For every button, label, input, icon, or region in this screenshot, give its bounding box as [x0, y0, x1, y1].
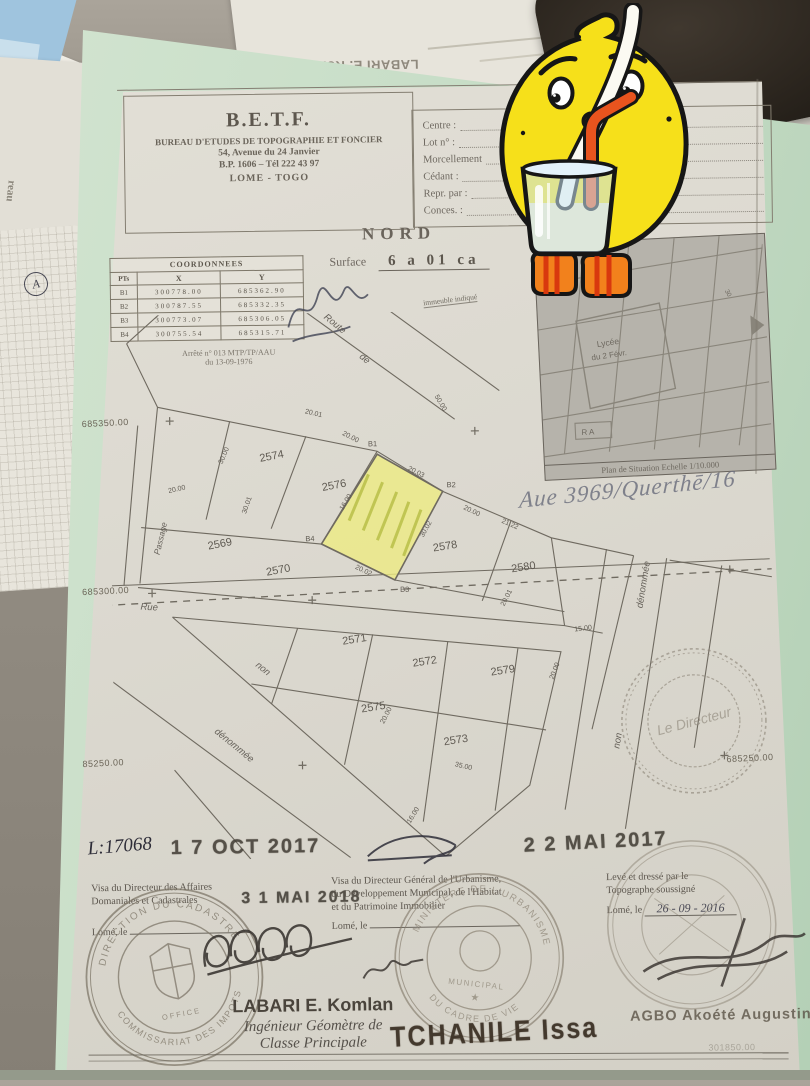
signature-labari: [196, 902, 362, 994]
flourish-stroke: [368, 836, 456, 865]
signature-middle: [359, 950, 430, 991]
street-label-passage: Passage: [152, 521, 169, 556]
stamp-crest: [148, 940, 198, 1003]
date-stamp-oct-2017: 1 7 OCT 2017: [170, 835, 320, 860]
grid-label-301850-faint: 301850.00: [708, 1042, 755, 1053]
parcel-number: 2579: [490, 663, 516, 679]
parcel-number: 2570: [265, 562, 291, 578]
letterhead-city: LOME - TOGO: [125, 171, 413, 186]
map-block-label: R A: [581, 427, 595, 437]
circled-mark-a-letter: A: [31, 276, 41, 292]
measurement: 50.00: [433, 394, 448, 413]
measurement: 20.01: [304, 408, 323, 419]
form-label: Cédant :: [423, 171, 458, 182]
surface-line: Surface 6 a 01 ca: [329, 251, 489, 271]
measurement: 20.00: [341, 430, 360, 444]
letterhead-pobox: B.P. 1606 – Tél 222 43 97: [125, 158, 413, 172]
coord-cell: 300778.00: [137, 284, 220, 299]
measurement: 35.00: [454, 761, 473, 772]
engineer-name: LABARI E. Komlan: [183, 993, 443, 1018]
map-place-line1: Lycée: [596, 336, 620, 349]
street-label-non: non: [253, 660, 272, 679]
parcel-number: 2574: [259, 448, 285, 464]
signature-right: [637, 911, 810, 993]
signature-stroke: [363, 960, 423, 979]
parcel-number: 2571: [341, 632, 367, 648]
lemon-shoes: [533, 253, 630, 296]
parcel-number: 2578: [432, 539, 458, 555]
desk-bottom-strip: [0, 1070, 810, 1080]
signature-stroke: [643, 917, 806, 987]
form-label: Repr. par :: [423, 188, 467, 200]
grid-label-85250: 85250.00: [82, 757, 124, 769]
form-label: Morcellement: [423, 154, 482, 166]
form-label: Conces. :: [424, 205, 463, 217]
map-place-line2: du 2 Févr.: [591, 348, 628, 362]
surface-value: 6 a 01 ca: [378, 252, 490, 272]
sad-lemon-sticker: [483, 3, 721, 305]
bottom-frame-line: [89, 1052, 789, 1061]
coord-cell: 300787.55: [137, 298, 220, 313]
measurement: 16.00: [406, 806, 421, 825]
stamp-star: ★: [470, 992, 480, 1004]
coord-col-pts: PTs: [110, 272, 137, 285]
street-label-rue: Rue: [140, 602, 158, 614]
measurement: 15.00: [574, 624, 592, 633]
coord-cell: B1: [110, 285, 137, 299]
measurement: 30.01: [241, 496, 253, 515]
parcel-number: 2572: [412, 654, 438, 670]
north-title: NORD: [319, 223, 479, 245]
stamp-directeur-text: Le Directeur: [655, 703, 734, 738]
measurement: 20.01: [500, 589, 514, 608]
round-stamp-directeur: Le Directeur: [618, 645, 770, 797]
vertex-label: B2: [447, 480, 456, 489]
vertex-label: B1: [368, 439, 377, 448]
street-label-denommee: dénommée: [212, 726, 256, 765]
vertex-label: B3: [400, 585, 409, 594]
coord-col-x: X: [137, 271, 220, 285]
measurement: 20.00: [168, 484, 187, 495]
street-label-denommee-2: dénommée: [634, 560, 652, 609]
surface-label: Surface: [329, 254, 366, 269]
photo-of-survey-document: { "scene": { "colors": { "folder_green":…: [0, 0, 810, 1080]
letterhead-acronym: B.E.T.F.: [124, 107, 412, 134]
signature-stroke: [204, 925, 352, 975]
letterhead-box: B.E.T.F. BUREAU D'ETUDES DE TOPOGRAPHIE …: [123, 92, 415, 234]
parcel-number: 2576: [321, 478, 347, 494]
signature-flourish: [363, 829, 464, 870]
parcel-number: 2569: [207, 536, 233, 552]
coord-cell: B2: [110, 299, 137, 313]
measurement: 20.00: [549, 662, 562, 681]
form-label: Centre :: [423, 120, 457, 131]
immeuble-note: immeuble indiqué: [423, 292, 478, 308]
lemonade-glass: [523, 161, 615, 254]
stamp-inner-text: MUNICIPAL: [448, 977, 505, 992]
parcel-number: 2575: [360, 700, 386, 716]
parcel-number: 2573: [443, 733, 469, 749]
agbo-name: AGBO Akoété Augustin: [630, 1006, 810, 1025]
vertex-label: B4: [305, 534, 314, 543]
street-label-de: de: [357, 351, 372, 366]
form-label: Lot n° :: [423, 137, 455, 148]
measurement: 21.22: [500, 518, 519, 531]
measurement: 30.00: [218, 446, 231, 465]
parcel-number: 2580: [510, 560, 536, 576]
side-paper-vertical-text: reau: [4, 180, 18, 202]
